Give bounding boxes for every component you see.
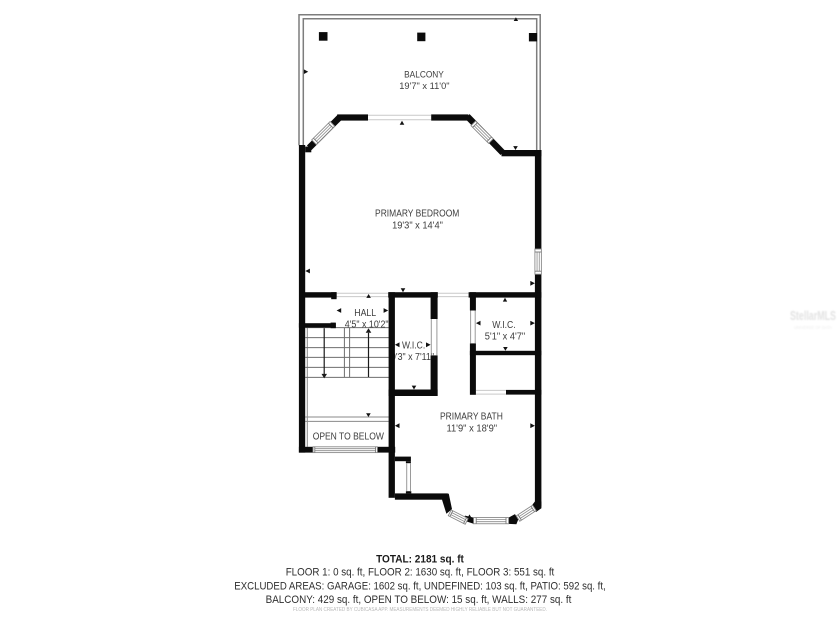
svg-text:FLOOR 1: 0 sq. ft, FLOOR 2: 16: FLOOR 1: 0 sq. ft, FLOOR 2: 1630 sq. ft,… — [286, 566, 555, 578]
svg-text:OPEN TO BELOW: OPEN TO BELOW — [313, 431, 384, 442]
svg-text:BALCONY: 429 sq. ft, OPEN TO B: BALCONY: 429 sq. ft, OPEN TO BELOW: 15 s… — [266, 594, 572, 606]
svg-text:HALL: HALL — [354, 308, 376, 319]
svg-text:19'7" x 11'0": 19'7" x 11'0" — [399, 81, 449, 92]
svg-text:FLOOR PLAN CREATED BY CUBICASA: FLOOR PLAN CREATED BY CUBICASA APP. MEAS… — [293, 607, 547, 613]
svg-text:9'3" x 7'11": 9'3" x 7'11" — [391, 352, 434, 363]
svg-text:BALCONY: BALCONY — [404, 70, 444, 81]
svg-text:PRIMARY BATH: PRIMARY BATH — [440, 411, 503, 422]
svg-text:TOTAL: 2181 sq. ft: TOTAL: 2181 sq. ft — [376, 554, 464, 566]
svg-text:W.I.C.: W.I.C. — [402, 340, 425, 351]
svg-text:4'5" x 10'2": 4'5" x 10'2" — [345, 320, 389, 331]
svg-text:UNIVERSE OF DATA: UNIVERSE OF DATA — [794, 325, 832, 330]
svg-text:11'9" x 18'9": 11'9" x 18'9" — [446, 423, 497, 434]
svg-text:W.I.C.: W.I.C. — [492, 320, 515, 331]
svg-text:19'3" x 14'4": 19'3" x 14'4" — [392, 221, 443, 232]
svg-text:5'1" x 4'7": 5'1" x 4'7" — [485, 331, 526, 342]
svg-text:EXCLUDED AREAS: GARAGE: 1602 s: EXCLUDED AREAS: GARAGE: 1602 sq. ft, UND… — [234, 580, 605, 592]
svg-text:PRIMARY BEDROOM: PRIMARY BEDROOM — [375, 208, 459, 219]
svg-text:StellarMLS: StellarMLS — [790, 308, 836, 323]
